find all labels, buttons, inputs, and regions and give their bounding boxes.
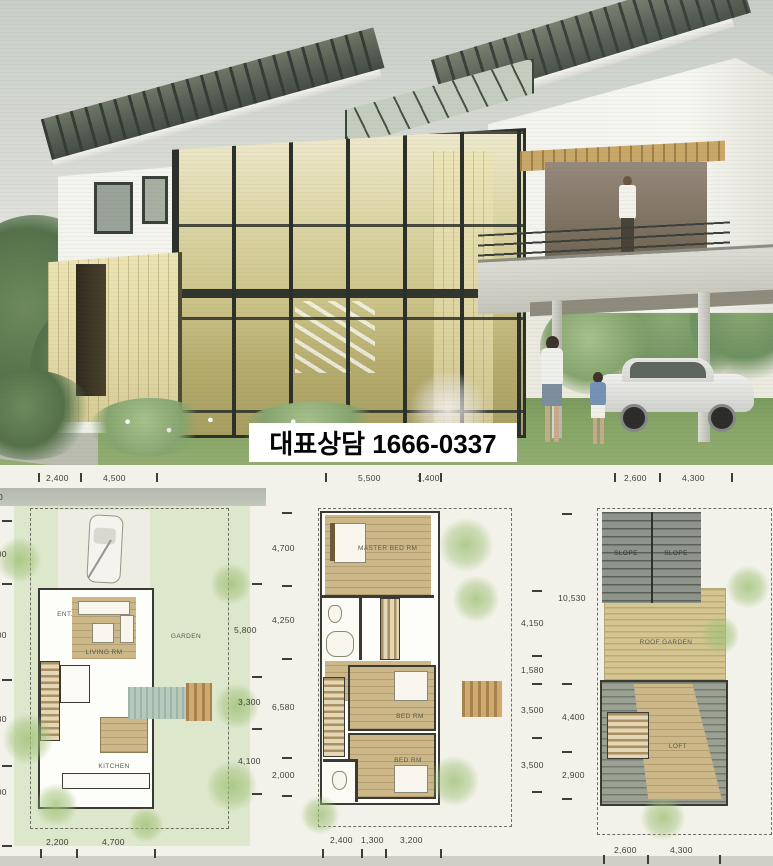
plan1-car-line xyxy=(88,539,112,577)
tick xyxy=(2,583,12,585)
tick xyxy=(282,795,292,797)
woman-leg-2 xyxy=(554,406,559,442)
tick xyxy=(2,679,12,681)
dim-label: 1,800 xyxy=(0,549,7,559)
plan-tree xyxy=(2,713,54,765)
dim-label: 1,400 xyxy=(417,473,440,483)
room-label: BED RM xyxy=(390,713,430,720)
dim-label: 1,300 xyxy=(361,835,384,845)
dim-label: 3,500 xyxy=(521,705,544,715)
car-windows xyxy=(630,362,706,378)
plan1-sofa-side xyxy=(120,615,134,643)
room-label: LOFT xyxy=(662,743,694,750)
tick xyxy=(719,855,721,864)
tick xyxy=(659,473,661,482)
room-label: BED RM xyxy=(388,757,428,764)
plan1-car xyxy=(86,514,124,584)
woman-leg-1 xyxy=(545,406,550,442)
plan-tree xyxy=(438,517,494,573)
room-label: LIVING RM xyxy=(82,649,126,656)
tick xyxy=(2,765,12,767)
dim-label: 4,500 xyxy=(0,630,7,640)
room-label: SLOPE xyxy=(612,550,640,557)
dim-label: 4,300 xyxy=(682,473,705,483)
dim-label: 1,580 xyxy=(521,665,544,675)
tick xyxy=(322,849,324,858)
plan1-bath xyxy=(60,665,90,703)
woman-figure xyxy=(537,336,567,442)
brochure-page: 대표상담 1666-0337 2,400 4,500 xyxy=(0,0,773,866)
plan-tree xyxy=(726,565,770,609)
tick xyxy=(282,512,292,514)
scan-bottom-strip xyxy=(0,856,773,866)
floor-plans-panel: 2,400 4,500 ENT. xyxy=(0,465,773,866)
dim-label: 4,300 xyxy=(670,845,693,855)
scan-gray-band xyxy=(0,488,266,506)
dim-label: 500 xyxy=(0,492,3,502)
plan1-dining-table xyxy=(100,717,148,753)
tick xyxy=(80,473,82,482)
plan2-bed2 xyxy=(394,765,428,793)
child-leg-1 xyxy=(593,418,597,444)
entrance-door-recess xyxy=(76,264,106,396)
tick xyxy=(562,513,572,515)
plan1-car-roof xyxy=(93,527,116,544)
tick xyxy=(361,849,363,858)
dim-label: 4,150 xyxy=(521,618,544,628)
dim-label: 5,800 xyxy=(234,625,257,635)
tick xyxy=(562,751,572,753)
plan-tree xyxy=(34,783,78,827)
room-label: ENT. xyxy=(52,611,78,618)
dim-label: 2,600 xyxy=(624,473,647,483)
tick xyxy=(440,849,442,858)
plan2-tub xyxy=(326,631,354,657)
plan2-toilet-2 xyxy=(332,771,347,790)
tick xyxy=(282,585,292,587)
carport-column-3 xyxy=(756,288,767,440)
dim-label: 4,700 xyxy=(272,543,295,553)
consultation-banner: 대표상담 1666-0337 xyxy=(249,423,517,462)
plan-tree xyxy=(452,575,500,623)
dim-label: 1,230 xyxy=(0,714,7,724)
plan-tree xyxy=(206,760,258,812)
plan-tree xyxy=(640,795,686,841)
dim-label: 2,900 xyxy=(562,770,585,780)
child-figure xyxy=(586,372,610,444)
child-leg-2 xyxy=(600,418,604,444)
child-shirt xyxy=(590,382,606,406)
dim-label: 6,580 xyxy=(272,702,295,712)
tick xyxy=(385,849,387,858)
plan2-closet xyxy=(380,598,400,660)
plan1-path xyxy=(128,687,186,719)
left-window-1 xyxy=(94,182,133,234)
man-shirt xyxy=(619,185,636,219)
tick xyxy=(532,737,542,739)
tick xyxy=(156,473,158,482)
tick xyxy=(532,791,542,793)
plan3-ridge-line xyxy=(651,512,653,603)
woman-skirt xyxy=(542,384,562,406)
plan3-slope-roof xyxy=(602,512,701,603)
left-window-2 xyxy=(142,176,168,224)
woman-top xyxy=(541,348,563,386)
tick xyxy=(40,849,42,858)
room-label: ROOF GARDEN xyxy=(638,639,694,646)
plan-tree xyxy=(428,755,480,807)
car xyxy=(596,352,754,428)
tick xyxy=(76,849,78,858)
plan3-loft-stairs xyxy=(607,712,649,759)
dim-label: 3,300 xyxy=(238,697,261,707)
plan1-kitchen-counter xyxy=(62,773,150,789)
tick xyxy=(282,658,292,660)
room-label: MASTER BED RM xyxy=(358,545,404,552)
dim-label: 2,200 xyxy=(46,837,69,847)
dim-label: 2,400 xyxy=(46,473,69,483)
room-label: GARDEN xyxy=(166,633,206,640)
plan-tree xyxy=(300,795,340,835)
tick xyxy=(325,473,327,482)
dim-label: 3,500 xyxy=(521,760,544,770)
plan-tree xyxy=(128,807,164,843)
plan2-stairs xyxy=(323,677,345,757)
plan2-deck xyxy=(462,681,502,717)
dim-label: 4,400 xyxy=(562,712,585,722)
tick xyxy=(2,845,12,847)
plan1-deck xyxy=(186,683,212,721)
tick xyxy=(532,655,542,657)
tick xyxy=(562,798,572,800)
dim-label: 2,400 xyxy=(330,835,353,845)
tick xyxy=(154,849,156,858)
dim-label: 4,100 xyxy=(238,756,261,766)
plan-tree xyxy=(700,615,740,655)
dim-label: 3,200 xyxy=(400,835,423,845)
consultation-banner-text: 대표상담 1666-0337 xyxy=(269,424,496,461)
tick xyxy=(614,473,616,482)
child-shorts xyxy=(591,405,605,418)
tick xyxy=(252,728,262,730)
tick xyxy=(252,583,262,585)
plan2-bed1 xyxy=(394,671,428,701)
tick xyxy=(532,683,542,685)
plan2-master-bed xyxy=(334,523,366,563)
plan2-toilet xyxy=(328,605,342,623)
room-label: SLOPE xyxy=(662,550,690,557)
tick xyxy=(38,473,40,482)
tick xyxy=(282,757,292,759)
tick xyxy=(2,520,12,522)
car-wheel-front xyxy=(708,404,736,432)
car-wheel-rear xyxy=(620,404,648,432)
dim-label: 4,500 xyxy=(103,473,126,483)
plan2-headboard xyxy=(330,523,335,561)
tick xyxy=(562,683,572,685)
dim-label: 4,250 xyxy=(272,615,295,625)
tick xyxy=(252,676,262,678)
plan1-rug-table xyxy=(92,623,114,643)
plan-tree xyxy=(210,563,252,605)
tick xyxy=(532,590,542,592)
dim-label: 2,600 xyxy=(614,845,637,855)
tick xyxy=(731,473,733,482)
tick xyxy=(440,473,442,482)
dim-label: 2,000 xyxy=(272,770,295,780)
room-label: KITCHEN xyxy=(92,763,136,770)
dim-label: 5,500 xyxy=(358,473,381,483)
tick xyxy=(603,855,605,864)
house-rendering: 대표상담 1666-0337 xyxy=(0,0,773,465)
plan1-sofa xyxy=(78,601,130,615)
tick xyxy=(647,855,649,864)
dim-label: 10,530 xyxy=(558,593,586,603)
dim-label: 1,000 xyxy=(0,787,7,797)
dim-label: 4,700 xyxy=(102,837,125,847)
tick xyxy=(252,793,262,795)
